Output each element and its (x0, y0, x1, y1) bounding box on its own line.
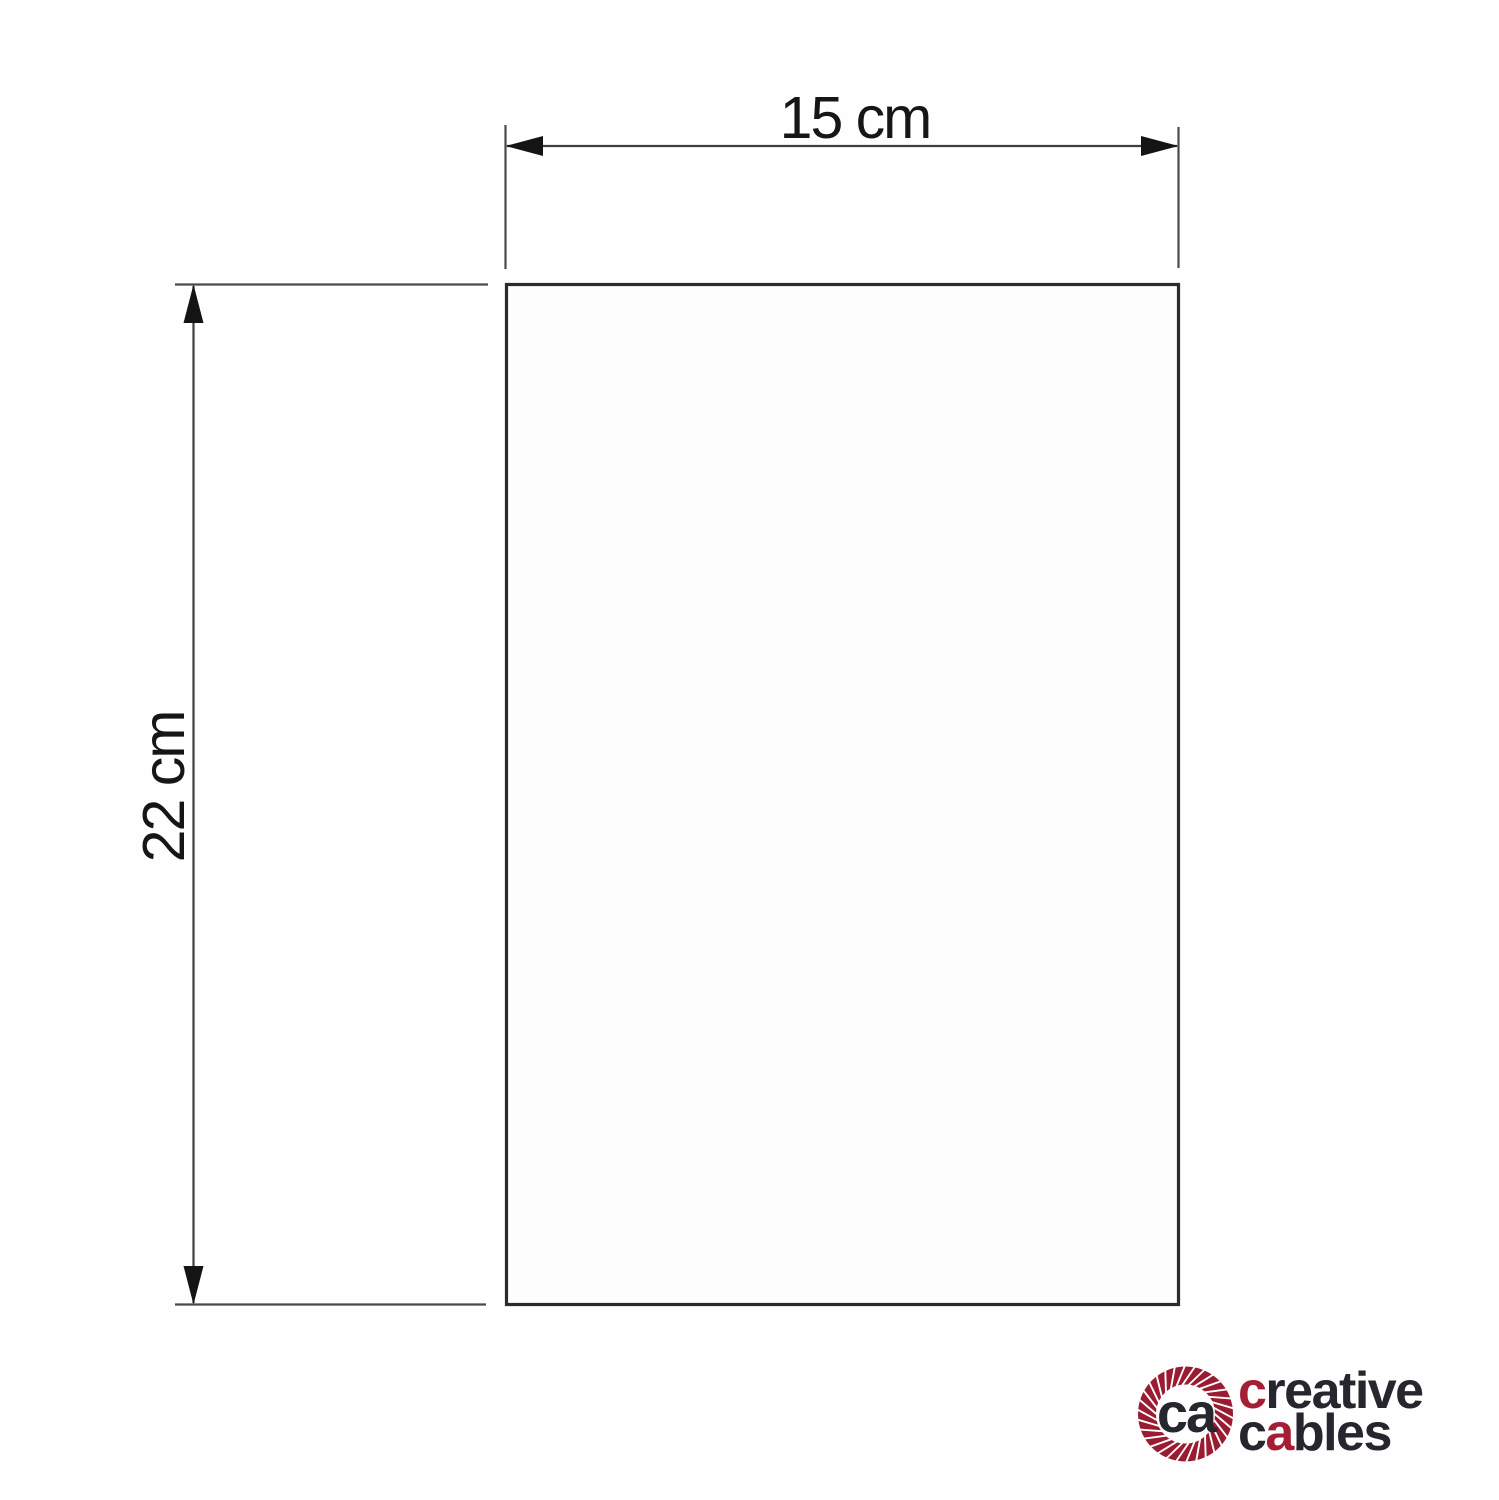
svg-text:15 cm: 15 cm (780, 85, 931, 151)
svg-text:22 cm: 22 cm (131, 712, 197, 863)
svg-text:cables: cables (1238, 1404, 1391, 1462)
svg-text:ca: ca (1157, 1381, 1218, 1444)
